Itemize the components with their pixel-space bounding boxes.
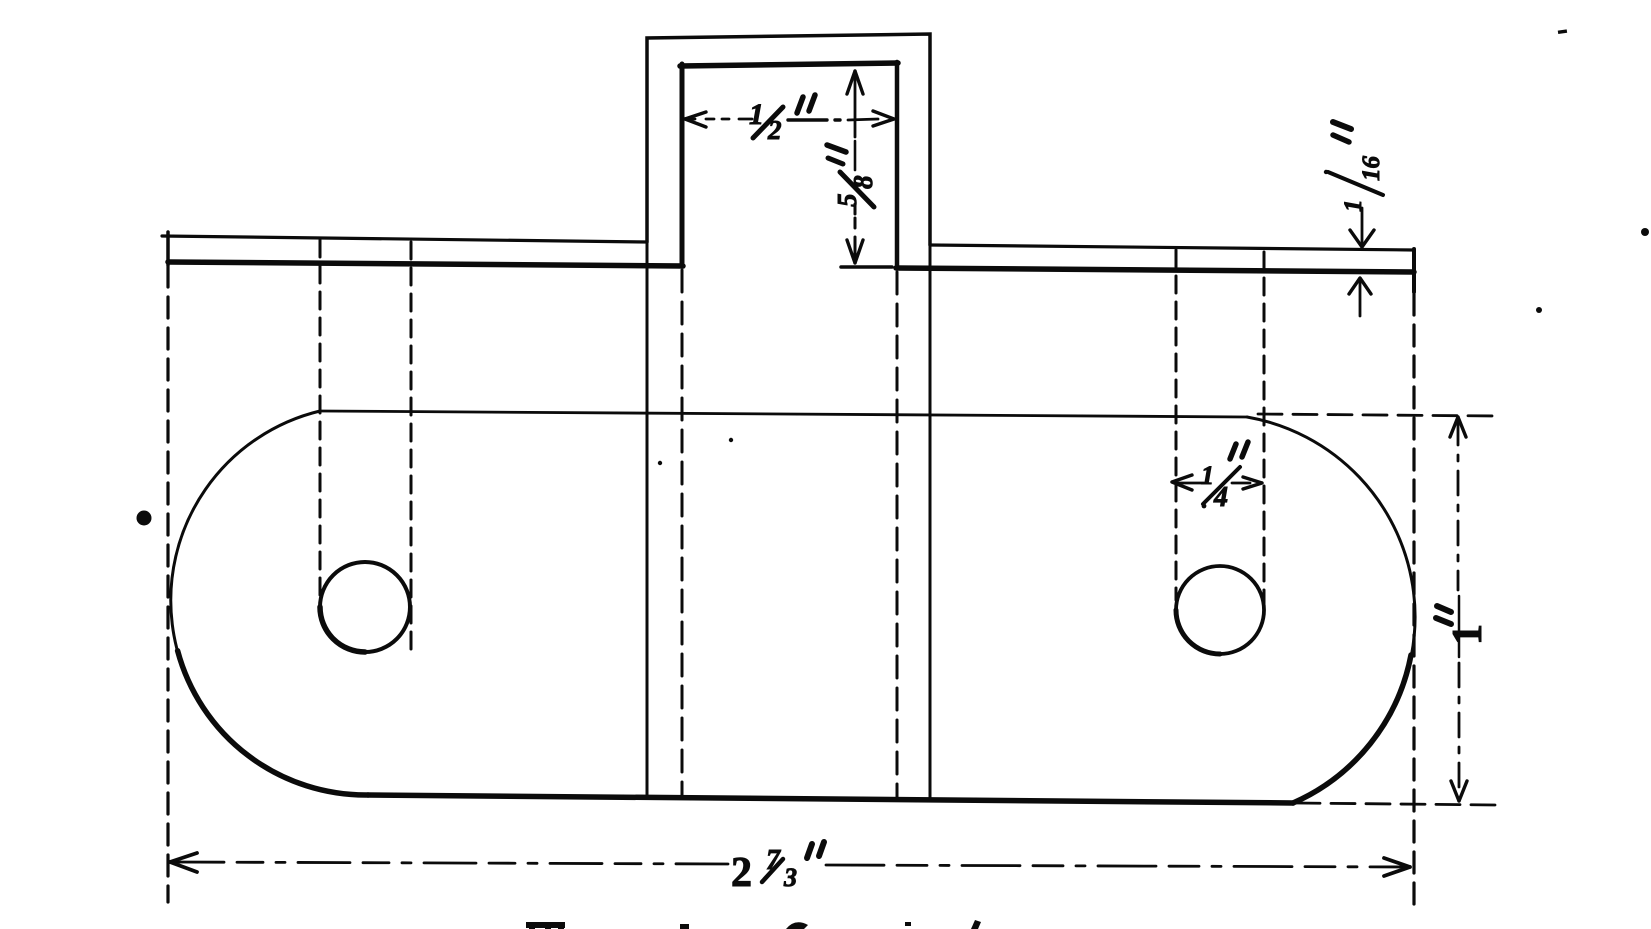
svg-text:1: 1 [1445, 624, 1491, 645]
svg-text:1: 1 [1340, 200, 1367, 213]
svg-text:1: 1 [1201, 461, 1214, 490]
svg-text:2: 2 [731, 850, 752, 896]
svg-text:3: 3 [783, 863, 797, 892]
svg-text:8: 8 [848, 175, 878, 189]
svg-text:5: 5 [832, 194, 862, 208]
svg-text:4: 4 [1213, 482, 1228, 513]
svg-text:2: 2 [767, 115, 782, 145]
svg-text:16: 16 [1358, 156, 1385, 182]
